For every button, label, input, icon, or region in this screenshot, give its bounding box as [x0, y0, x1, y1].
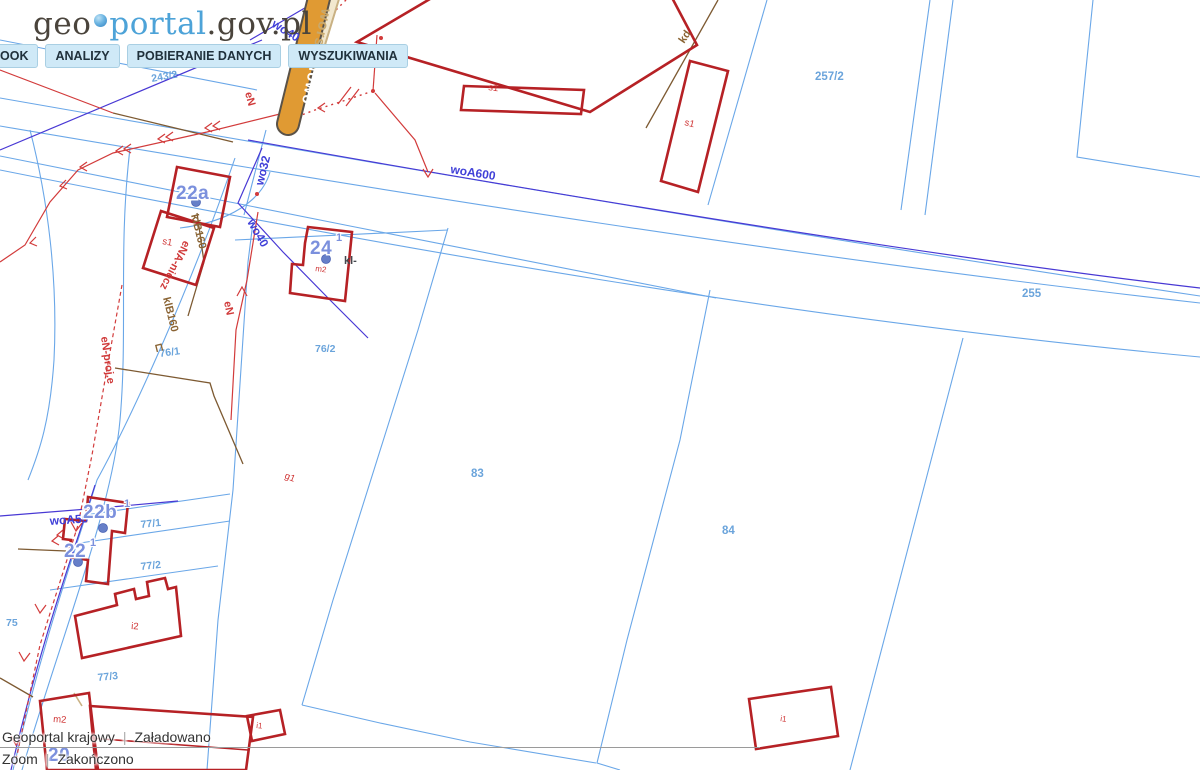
menu-item-pobieranie-danych[interactable]: POBIERANIE DANYCH: [127, 44, 282, 68]
map-label: 84: [722, 525, 735, 537]
status-row: Geoportal krajowy|Załadowano: [0, 726, 760, 748]
map-label: klB160: [160, 296, 180, 333]
map-label: eN: [221, 300, 236, 316]
map-label: 22: [64, 541, 86, 562]
menu-item-ook[interactable]: OOK: [0, 44, 38, 68]
power-pole-dot: [371, 89, 375, 93]
map-label: 1: [124, 498, 130, 510]
logo-text-geo: geo: [33, 6, 91, 42]
map-label: 22a: [176, 183, 209, 204]
map-label: 1: [90, 537, 96, 549]
building-outline: [357, 0, 697, 112]
map-label: 77/2: [140, 559, 162, 573]
power-line-arrows: [11, 103, 433, 745]
status-bar: Geoportal krajowy|ZaładowanoZoom|Zakończ…: [0, 726, 760, 770]
status-right: Zakończono: [57, 751, 133, 767]
map-label: eN-proj.e: [98, 336, 117, 385]
map-label: i2: [131, 621, 139, 632]
map-label: 75: [6, 617, 18, 629]
map-canvas[interactable]: 243/2257/225576/176/2838477/177/277/375s…: [0, 0, 1200, 770]
status-row: Zoom|Zakończono: [0, 748, 760, 770]
map-viewport[interactable]: 243/2257/225576/176/2838477/177/277/375s…: [0, 0, 1200, 770]
status-separator: |: [123, 729, 127, 745]
geoportal-logo[interactable]: geoportal.gov.pl: [33, 6, 312, 42]
map-label: s1: [161, 236, 173, 249]
status-left: Geoportal krajowy: [2, 729, 115, 745]
logo-text-portal: portal: [109, 6, 206, 42]
map-label: woA600: [449, 162, 497, 183]
globe-icon: [94, 14, 107, 27]
address-point-dot: [99, 524, 108, 533]
map-label: 22b: [83, 502, 117, 523]
parcel-lines: [0, 0, 1200, 770]
map-label: i1: [780, 714, 788, 724]
map-label: kd: [677, 28, 694, 45]
status-separator: |: [46, 751, 50, 767]
power-lines: [0, 0, 433, 765]
status-left: Zoom: [2, 751, 38, 767]
power-pole-dot: [379, 36, 383, 40]
map-label: 1: [336, 232, 342, 244]
map-label: eN: [242, 91, 257, 108]
map-label: 83: [471, 468, 484, 480]
map-label: g1: [283, 471, 297, 485]
map-label: 77/1: [140, 517, 162, 531]
map-labels: 243/2257/225576/176/2838477/177/277/375s…: [6, 6, 1042, 766]
map-label: 243/2: [150, 69, 178, 85]
building-outline: [75, 578, 181, 658]
map-label: 24: [310, 238, 332, 259]
map-label: 76/2: [315, 343, 336, 355]
power-pole-dot: [255, 192, 259, 196]
menu-item-wyszukiwania[interactable]: WYSZUKIWANIA: [288, 44, 407, 68]
status-right: Załadowano: [134, 729, 210, 745]
map-label: kl-: [344, 255, 357, 267]
map-label: 257/2: [815, 71, 844, 83]
building-outline: [461, 86, 584, 114]
map-label: wo40: [244, 216, 272, 250]
map-label: m2: [315, 264, 328, 275]
main-menu: OOKANALIZYPOBIERANIE DANYCHWYSZUKIWANIA: [0, 44, 408, 68]
map-label: s1: [683, 117, 695, 130]
utility-lines-water: [0, 2, 1200, 770]
map-label: 77/3: [97, 670, 119, 684]
buildings: [40, 0, 838, 770]
logo-text-suffix: .gov.pl: [207, 6, 312, 42]
map-label: m2: [53, 714, 67, 726]
map-label: 255: [1022, 288, 1042, 300]
map-label: s1: [488, 82, 499, 94]
menu-item-analizy[interactable]: ANALIZY: [45, 44, 119, 68]
building-outline: [749, 687, 838, 749]
